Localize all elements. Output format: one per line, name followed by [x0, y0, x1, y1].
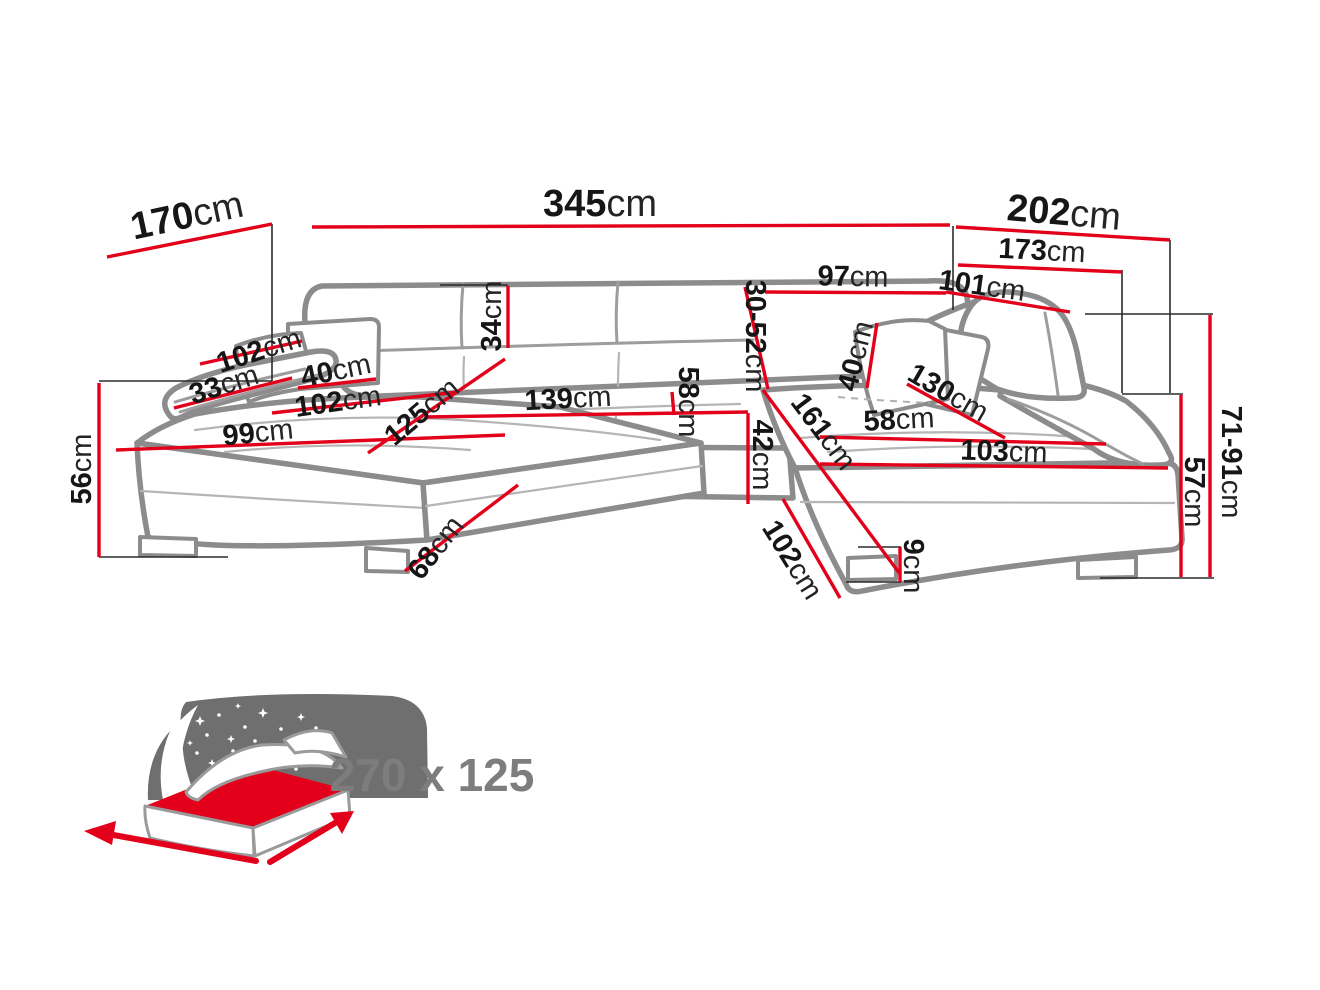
dim-label-left-side-depth: 170cm: [127, 184, 247, 249]
dim-label-right-seat-depth: 58cm: [863, 402, 936, 438]
dim-label-right-inner-width: 173cm: [998, 233, 1087, 270]
diagram-canvas: 170cm 345cm 202cm 173cm 97cm 101cm 34cm …: [0, 0, 1320, 990]
dim-line-total-width: [312, 225, 950, 227]
dim-label-side-height: 56cm: [66, 434, 98, 505]
dim-label-back-section-width: 97cm: [817, 260, 888, 293]
dim-label-backrest-height-range: 71-91cm: [1215, 406, 1247, 519]
sofa-leg: [140, 537, 196, 556]
dim-label-backrest-cushion-height: 34cm: [476, 281, 508, 352]
sleeping-area-label: 270 x 125: [330, 749, 535, 801]
dim-label-seat-base-height: 57cm: [1178, 457, 1210, 528]
sofa-leg: [366, 548, 408, 572]
dim-label-front-seat-height: 42cm: [746, 420, 778, 491]
dim-label-adjustable-backrest-height: 30-52cm: [739, 280, 771, 393]
sofa-dimension-diagram: 170cm 345cm 202cm 173cm 97cm 101cm 34cm …: [0, 0, 1320, 990]
width-arrow-head: [84, 821, 116, 845]
dim-label-leg-height: 9cm: [897, 539, 929, 594]
sofa-leg: [1078, 557, 1136, 578]
dim-label-right-seat-width: 103cm: [960, 434, 1048, 469]
sleeping-function-icon: 270 x 125: [84, 694, 534, 862]
dim-label-middle-seat-depth: 58cm: [672, 367, 704, 438]
dim-label-total-width: 345cm: [543, 183, 657, 225]
dim-label-middle-seat-width: 139cm: [524, 381, 613, 418]
